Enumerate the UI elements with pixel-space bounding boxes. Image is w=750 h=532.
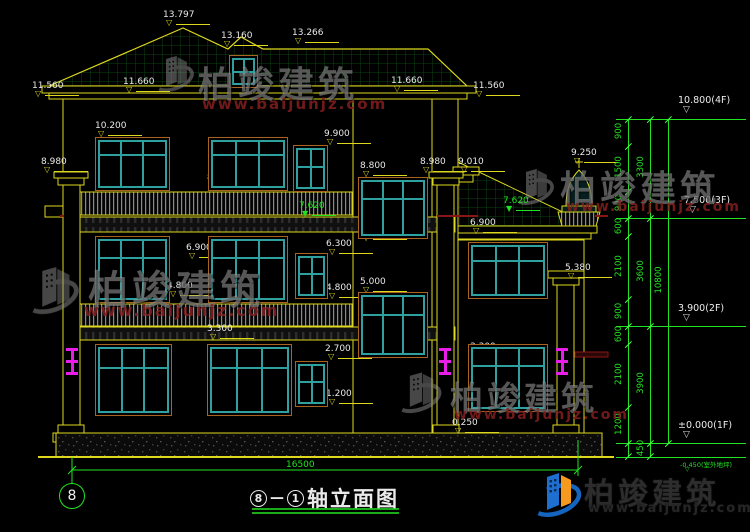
window (358, 177, 428, 239)
window-transom (473, 365, 543, 367)
lamp-bar (66, 372, 78, 375)
window-transom (100, 154, 165, 156)
window (293, 145, 328, 192)
window-transom (100, 367, 167, 369)
window (358, 292, 428, 358)
dimension-chain-value: 2100 (614, 244, 624, 288)
level-label: -0.450(室外地坪) (680, 459, 732, 469)
elevation-label: 2.700 (325, 344, 351, 354)
window-transom (212, 367, 287, 369)
window-mullion (261, 349, 263, 411)
elevation-label: 9.250 (571, 148, 597, 158)
window-mullion (120, 142, 122, 186)
lamp-bar (556, 360, 568, 363)
elevation-label: 3.300 (207, 324, 233, 334)
window-transom (213, 154, 283, 156)
elevation-label: 4.800 (326, 283, 352, 293)
window-mullion (142, 142, 144, 186)
elevation-label: 9.900 (324, 129, 350, 139)
window-frame (98, 140, 167, 188)
window-mullion (495, 247, 497, 294)
level-line (616, 218, 746, 219)
window-mullion (121, 349, 123, 411)
window-transom (300, 381, 323, 383)
level-line (616, 119, 746, 120)
window-mullion (143, 349, 145, 411)
window-mullion (518, 247, 520, 294)
level-label: ±0.000(1F) (678, 420, 732, 431)
elevation-label: 13.797 (163, 10, 195, 20)
elevation-label: 11.660 (391, 76, 423, 86)
dimension-chain-value: 2100 (614, 352, 624, 396)
window-frame (211, 140, 285, 188)
window-mullion (235, 142, 237, 186)
title-dash: — (270, 490, 284, 506)
window-mullion (402, 182, 404, 234)
watermark-url: www.baijunjz.com (202, 95, 387, 113)
window-transom (300, 273, 323, 275)
window-transom (473, 260, 543, 262)
window-frame (361, 180, 425, 236)
dimension-chain-value: 3600 (636, 249, 646, 293)
window-transom (298, 166, 323, 168)
title-text: 轴立面图 (307, 483, 399, 513)
window-mullion (311, 366, 313, 402)
level-line (616, 326, 746, 327)
window-mullion (382, 297, 384, 353)
window-mullion (310, 150, 312, 187)
dimension-chain-value: 450 (636, 426, 646, 470)
window-frame (298, 256, 325, 296)
lamp-bar (556, 348, 568, 351)
window-frame (296, 148, 325, 189)
window-mullion (236, 349, 238, 411)
lamp-bar (66, 348, 78, 351)
window (207, 344, 292, 416)
elevation-label: 5.380 (565, 263, 591, 273)
dimension-chain-value: 600 (614, 312, 624, 356)
watermark-url: www.baijunjz.com (84, 301, 279, 320)
wall-lamp (556, 348, 568, 375)
window-transom (363, 198, 423, 200)
elevation-label: 11.560 (473, 81, 505, 91)
elevation-label: 13.160 (221, 31, 253, 41)
window-frame (210, 347, 289, 413)
window-frame (298, 364, 325, 404)
elevation-label: 8.800 (360, 161, 386, 171)
elevation-label: 7.620 (503, 196, 529, 206)
lamp-bar (439, 348, 451, 351)
axis-bubble-label: 8 (68, 488, 77, 504)
level-label: 10.800(4F) (678, 95, 730, 106)
title-axis-start: 8 (250, 490, 267, 507)
elevation-label: 6.300 (326, 239, 352, 249)
dimension-chain-value: 10800 (654, 258, 664, 302)
wall-lamp (439, 348, 451, 375)
elevation-label: 8.980 (420, 157, 446, 167)
elevation-label: 10.200 (95, 121, 127, 131)
window-frame (471, 245, 545, 296)
window (95, 137, 170, 191)
window-mullion (402, 297, 404, 353)
elevation-label: 11.560 (32, 81, 64, 91)
window (295, 361, 328, 407)
level-label: 3.900(2F) (678, 303, 724, 314)
elevation-label: 6.900 (470, 218, 496, 228)
watermark-url: www.baijunjz.com (454, 407, 629, 423)
title-axis-end: 1 (287, 490, 304, 507)
watermark-url: www.baijunjz.com (566, 199, 741, 215)
window-mullion (311, 258, 313, 294)
dimension-chain-value: 3900 (636, 361, 646, 405)
window (208, 137, 288, 191)
axis-bubble: 8 (59, 483, 85, 509)
window-frame (361, 295, 425, 355)
window (295, 253, 328, 299)
window-frame (98, 347, 169, 413)
window-mullion (258, 142, 260, 186)
elevation-label: 7.620 (299, 201, 325, 211)
cad-elevation-screenshot: 13.79713.16013.26611.56011.66011.66011.5… (0, 0, 750, 532)
brand-watermark-corner-url: www.baijunjz.com (588, 501, 750, 516)
elevation-label: 13.266 (292, 28, 324, 38)
lamp-bar (439, 360, 451, 363)
window (95, 344, 172, 416)
elevation-label: 5.000 (360, 277, 386, 287)
wall-lamp (66, 348, 78, 375)
window-mullion (382, 182, 384, 234)
elevation-label: 11.660 (123, 77, 155, 87)
drawing-title: 8 — 1 轴立面图 (250, 483, 399, 513)
window (468, 242, 548, 299)
elevation-label: 1.200 (326, 389, 352, 399)
window-transom (363, 314, 423, 316)
lamp-bar (66, 360, 78, 363)
elevation-label: 9.010 (458, 157, 484, 167)
overall-width-dimension: 16500 (286, 460, 315, 470)
elevation-label: 8.980 (41, 157, 67, 167)
